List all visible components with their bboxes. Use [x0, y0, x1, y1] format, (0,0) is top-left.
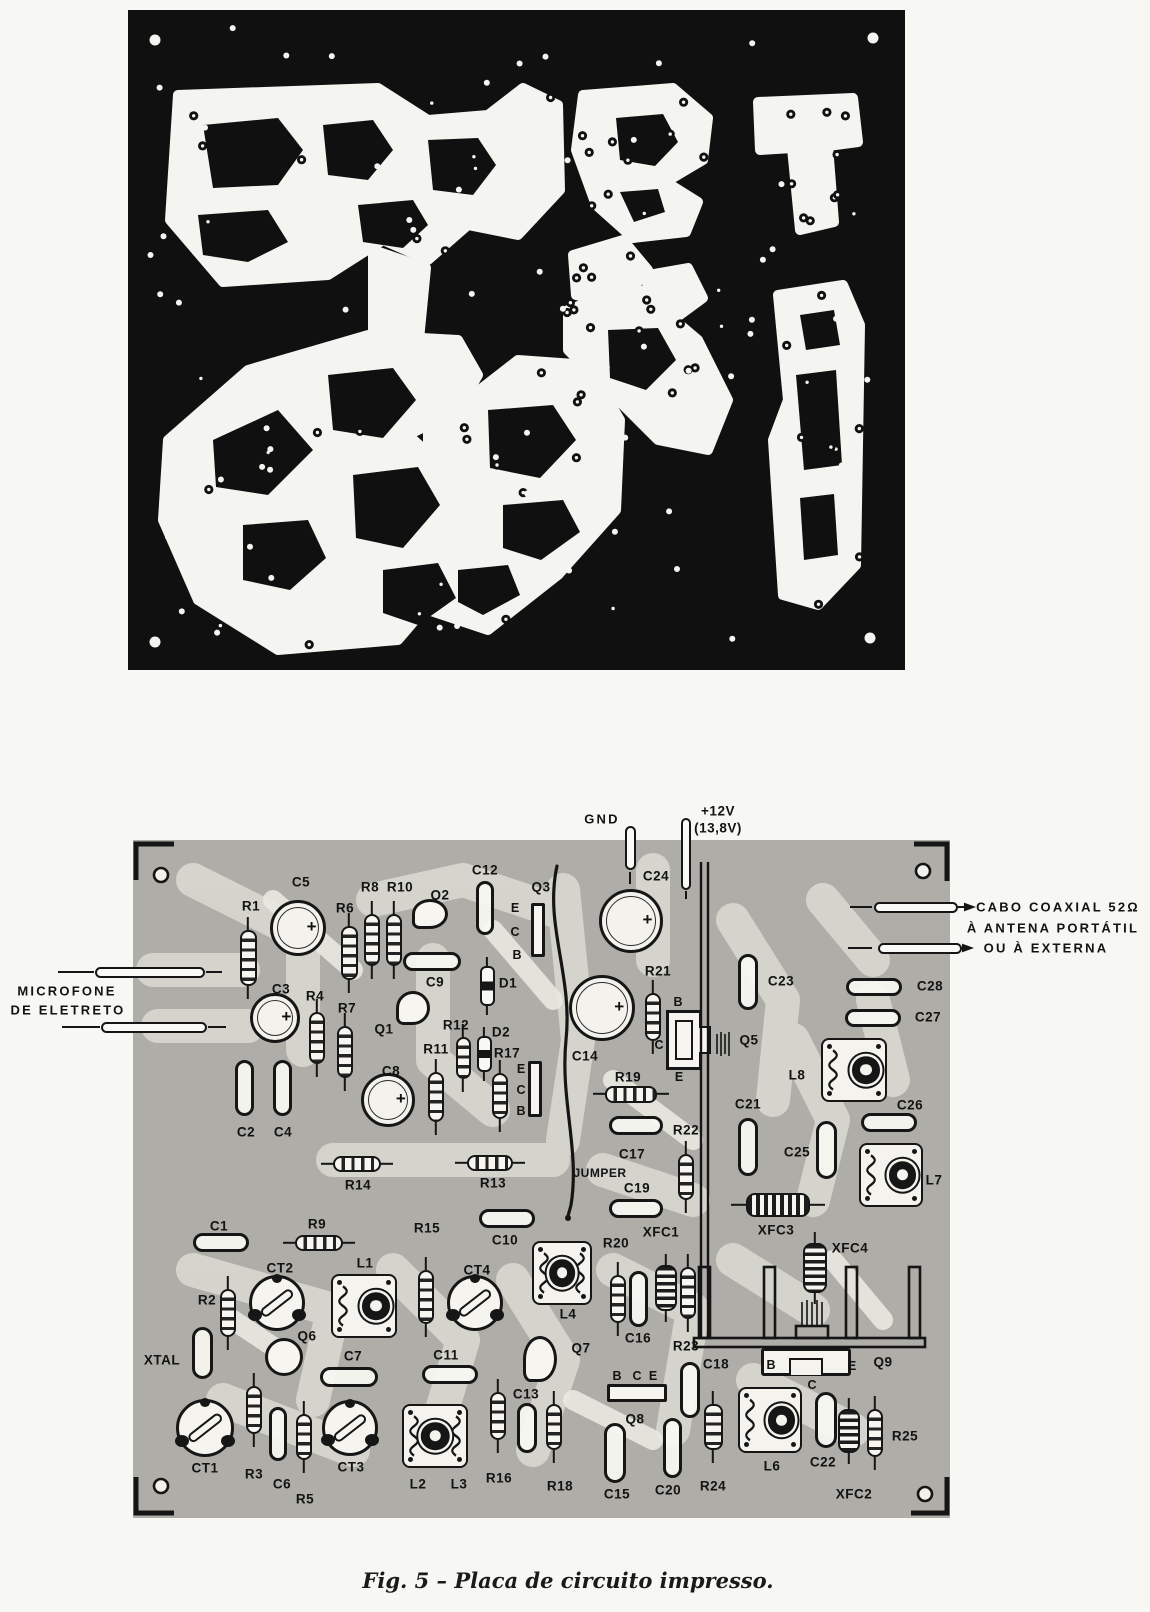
label-R18: R18 — [547, 1479, 573, 1494]
label-R6: R6 — [336, 901, 354, 916]
label-R15: R15 — [414, 1221, 440, 1236]
label-C11: C11 — [433, 1348, 459, 1363]
component-R23 — [680, 1267, 696, 1319]
pin-label-E-11: E — [649, 1369, 657, 1383]
component-C9 — [403, 952, 461, 971]
component-+12V — [681, 818, 691, 890]
label-D1: D1 — [499, 976, 517, 991]
component-R19 — [605, 1086, 657, 1103]
label-R11: R11 — [423, 1042, 449, 1057]
component-Q5 — [666, 1010, 702, 1070]
component-Q8 — [607, 1384, 667, 1402]
component-R21 — [645, 993, 661, 1041]
component-R24 — [704, 1404, 723, 1450]
component-D2 — [477, 1036, 492, 1072]
label-À ANTENA PORTÁTIL: À ANTENA PORTÁTIL — [967, 921, 1139, 936]
component-C12 — [476, 881, 494, 935]
component-R16 — [490, 1392, 506, 1440]
label-C7: C7 — [344, 1349, 362, 1364]
component-XFC2 — [838, 1409, 860, 1453]
component-q4-outline — [528, 1061, 542, 1117]
label-XFC3: XFC3 — [758, 1223, 795, 1238]
component-C19 — [609, 1199, 663, 1218]
pin-label-C-10: C — [632, 1369, 641, 1383]
label-R8: R8 — [361, 880, 379, 895]
label-R14: R14 — [345, 1178, 371, 1193]
label-R23: R23 — [673, 1339, 699, 1354]
component-Q1 — [396, 991, 430, 1025]
component-CT1 — [176, 1399, 234, 1457]
pin-label-B-6: B — [673, 995, 682, 1009]
component-L2 — [402, 1404, 468, 1468]
label-L1: L1 — [357, 1256, 374, 1271]
component-R25 — [867, 1409, 883, 1457]
pin-label-E-3: E — [517, 1062, 525, 1076]
label-C15: C15 — [604, 1487, 630, 1502]
component-coax-lead-2 — [878, 943, 962, 954]
label-R12: R12 — [443, 1018, 469, 1033]
label-R16: R16 — [486, 1471, 512, 1486]
component-XFC4 — [803, 1243, 827, 1293]
component-L4 — [532, 1241, 592, 1305]
component-C5: + — [270, 900, 326, 956]
label-XFC2: XFC2 — [836, 1487, 873, 1502]
pin-label-E-0: E — [511, 901, 519, 915]
component-D1 — [480, 966, 495, 1006]
label-JUMPER: JUMPER — [573, 1166, 626, 1180]
label-R25: R25 — [892, 1429, 918, 1444]
label-C1: C1 — [210, 1219, 228, 1234]
label-XFC4: XFC4 — [832, 1241, 869, 1256]
component-L1 — [331, 1274, 397, 1338]
pin-label-E-13: E — [848, 1359, 856, 1373]
label-C8: C8 — [382, 1064, 400, 1079]
component-C3: + — [250, 993, 300, 1043]
label-L7: L7 — [926, 1173, 943, 1188]
label-C6: C6 — [273, 1477, 291, 1492]
component-Q7 — [523, 1336, 557, 1382]
pin-label-B-12: B — [766, 1358, 775, 1372]
label-Q2: Q2 — [430, 888, 449, 903]
label-Q3: Q3 — [531, 880, 550, 895]
component-R20 — [610, 1275, 626, 1323]
component-C6 — [269, 1407, 287, 1461]
label-R2: R2 — [198, 1293, 216, 1308]
pin-label-B-9: B — [612, 1369, 621, 1383]
label-Q9: Q9 — [873, 1355, 892, 1370]
label-C12: C12 — [472, 863, 498, 878]
component-C23 — [738, 954, 758, 1010]
label-C27: C27 — [915, 1010, 941, 1025]
label-C10: C10 — [492, 1233, 518, 1248]
component-coax-lead-1 — [874, 902, 958, 913]
component-mic-lead-1 — [95, 967, 205, 978]
label-CT3: CT3 — [337, 1460, 364, 1475]
label-C24: C24 — [643, 869, 669, 884]
label-L8: L8 — [789, 1068, 806, 1083]
label-Q6: Q6 — [297, 1329, 316, 1344]
component-CT3 — [322, 1400, 378, 1456]
label-C9: C9 — [426, 975, 444, 990]
pin-label-C-4: C — [516, 1083, 525, 1097]
component-C17 — [609, 1116, 663, 1135]
label-MICROFONE: MICROFONE — [17, 984, 116, 999]
component-CT2 — [249, 1275, 305, 1331]
component-R17 — [492, 1073, 508, 1119]
component-C24: + — [599, 889, 663, 953]
label-R10: R10 — [387, 880, 413, 895]
component-R1 — [240, 930, 257, 986]
pin-label-C-14: C — [807, 1378, 816, 1392]
component-C18 — [680, 1362, 700, 1418]
label-L4: L4 — [560, 1307, 577, 1322]
label-R3: R3 — [245, 1467, 263, 1482]
label-DE ELETRETO: DE ELETRETO — [11, 1003, 126, 1018]
label-XFC1: XFC1 — [643, 1225, 680, 1240]
label-C28: C28 — [917, 979, 943, 994]
label-XTAL: XTAL — [144, 1353, 180, 1368]
label-C14: C14 — [572, 1049, 598, 1064]
label-C16: C16 — [625, 1331, 651, 1346]
label-C4: C4 — [274, 1125, 292, 1140]
pin-label-C-1: C — [510, 925, 519, 939]
component-L6 — [738, 1387, 802, 1453]
label-Q5: Q5 — [739, 1033, 758, 1048]
component-R4 — [309, 1012, 325, 1064]
label-C25: C25 — [784, 1145, 810, 1160]
label-CT1: CT1 — [191, 1461, 218, 1476]
label-C26: C26 — [897, 1098, 923, 1113]
pin-label-B-2: B — [512, 948, 521, 962]
component-C1 — [193, 1233, 249, 1252]
component-L7 — [859, 1143, 923, 1207]
component-C26 — [861, 1113, 917, 1132]
label-R1: R1 — [242, 899, 260, 914]
label-C17: C17 — [619, 1147, 645, 1162]
label-C18: C18 — [703, 1357, 729, 1372]
label-C21: C21 — [735, 1097, 761, 1112]
component-GND — [625, 826, 636, 870]
component-C2 — [235, 1060, 254, 1116]
label-R13: R13 — [480, 1176, 506, 1191]
label-R7: R7 — [338, 1001, 356, 1016]
label-Q1: Q1 — [374, 1022, 393, 1037]
component-C25 — [816, 1121, 837, 1179]
component-C22 — [815, 1392, 837, 1448]
pin-label-C-7: C — [654, 1038, 663, 1052]
component-C13 — [517, 1403, 537, 1453]
component-C11 — [422, 1365, 478, 1384]
pin-label-B-5: B — [516, 1104, 525, 1118]
label-C22: C22 — [810, 1455, 836, 1470]
label-R24: R24 — [700, 1479, 726, 1494]
figure-page: R1+C5R6R8R10Q2C12Q3C9D1Q1+C3R4R7R12D2R11… — [0, 0, 1150, 1612]
label-R5: R5 — [296, 1492, 314, 1507]
component-R7 — [337, 1026, 353, 1078]
label-L2: L2 — [410, 1477, 427, 1492]
component-Q2 — [412, 899, 448, 929]
figure-caption: Fig. 5 – Placa de circuito impresso. — [362, 1568, 773, 1593]
component-R2 — [220, 1289, 236, 1337]
label-CT4: CT4 — [463, 1263, 490, 1278]
component-C21 — [738, 1118, 758, 1176]
component-Q6 — [265, 1338, 303, 1376]
label-OU À EXTERNA: OU À EXTERNA — [984, 941, 1109, 956]
component-R5 — [296, 1414, 312, 1460]
label-C23: C23 — [768, 974, 794, 989]
component-R12 — [456, 1037, 471, 1079]
component-C10 — [479, 1209, 535, 1228]
label-+12V: +12V — [701, 804, 735, 819]
label-C3: C3 — [272, 982, 290, 997]
component-L8 — [821, 1038, 887, 1102]
label-Q7: Q7 — [571, 1341, 590, 1356]
components-layer: R1+C5R6R8R10Q2C12Q3C9D1Q1+C3R4R7R12D2R11… — [0, 0, 1150, 1612]
component-C28 — [846, 978, 902, 996]
component-R18 — [546, 1404, 562, 1450]
label-C5: C5 — [292, 875, 310, 890]
label-R19: R19 — [615, 1070, 641, 1085]
label-C19: C19 — [624, 1181, 650, 1196]
component-C20 — [663, 1418, 682, 1478]
label-R9: R9 — [308, 1217, 326, 1232]
label-C20: C20 — [655, 1483, 681, 1498]
component-C4 — [273, 1060, 292, 1116]
component-XTAL — [192, 1327, 213, 1379]
component-C7 — [320, 1367, 378, 1387]
component-Q3 — [531, 903, 545, 957]
component-R13 — [467, 1155, 513, 1171]
label-R17: R17 — [494, 1046, 520, 1061]
component-R22 — [678, 1154, 694, 1200]
component-XFC1 — [655, 1265, 677, 1311]
component-CT4 — [447, 1275, 503, 1331]
label-R21: R21 — [645, 964, 671, 979]
component-XFC3 — [746, 1193, 810, 1217]
component-R8 — [364, 914, 380, 966]
label-C2: C2 — [237, 1125, 255, 1140]
label-R4: R4 — [306, 989, 324, 1004]
component-mic-lead-2 — [101, 1022, 207, 1033]
component-C14: + — [569, 975, 635, 1041]
label-L6: L6 — [764, 1459, 781, 1474]
component-R15 — [418, 1270, 434, 1324]
label-(13,8V): (13,8V) — [694, 821, 742, 836]
label-CABO COAXIAL 52Ω: CABO COAXIAL 52Ω — [976, 900, 1140, 915]
component-C15 — [604, 1423, 626, 1483]
label-GND: GND — [584, 812, 620, 827]
label-R22: R22 — [673, 1123, 699, 1138]
component-C16 — [629, 1271, 648, 1327]
component-C8: + — [361, 1073, 415, 1127]
component-R3 — [246, 1386, 262, 1434]
component-C27 — [845, 1009, 901, 1027]
component-R11 — [428, 1072, 444, 1122]
pin-label-E-8: E — [675, 1070, 683, 1084]
component-R10 — [386, 914, 402, 966]
label-R20: R20 — [603, 1236, 629, 1251]
label-CT2: CT2 — [266, 1261, 293, 1276]
label-Q8: Q8 — [625, 1412, 644, 1427]
label-C13: C13 — [513, 1387, 539, 1402]
component-R6 — [341, 926, 358, 980]
label-L3: L3 — [451, 1477, 468, 1492]
label-D2: D2 — [492, 1025, 510, 1040]
component-R14 — [333, 1156, 381, 1172]
component-R9 — [295, 1235, 343, 1251]
